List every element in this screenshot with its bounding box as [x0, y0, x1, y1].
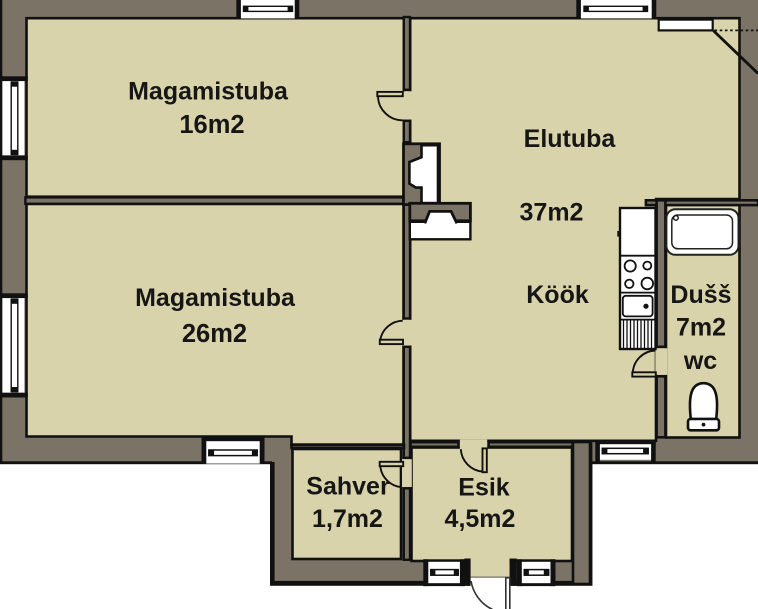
svg-text:7m2: 7m2 — [676, 314, 726, 342]
svg-text:Magamistuba: Magamistuba — [128, 78, 289, 106]
svg-text:Esik: Esik — [458, 474, 510, 502]
svg-text:Magamistuba: Magamistuba — [135, 284, 296, 312]
svg-text:Sahver: Sahver — [306, 473, 390, 501]
svg-text:Dušš: Dušš — [670, 281, 731, 309]
svg-text:37m2: 37m2 — [520, 198, 584, 226]
svg-text:Köök: Köök — [526, 281, 589, 309]
svg-text:1,7m2: 1,7m2 — [312, 505, 383, 533]
svg-text:26m2: 26m2 — [182, 320, 247, 348]
svg-text:16m2: 16m2 — [179, 111, 244, 139]
svg-text:Elutuba: Elutuba — [524, 125, 617, 153]
svg-text:4,5m2: 4,5m2 — [445, 505, 516, 533]
svg-text:wc: wc — [683, 347, 717, 375]
